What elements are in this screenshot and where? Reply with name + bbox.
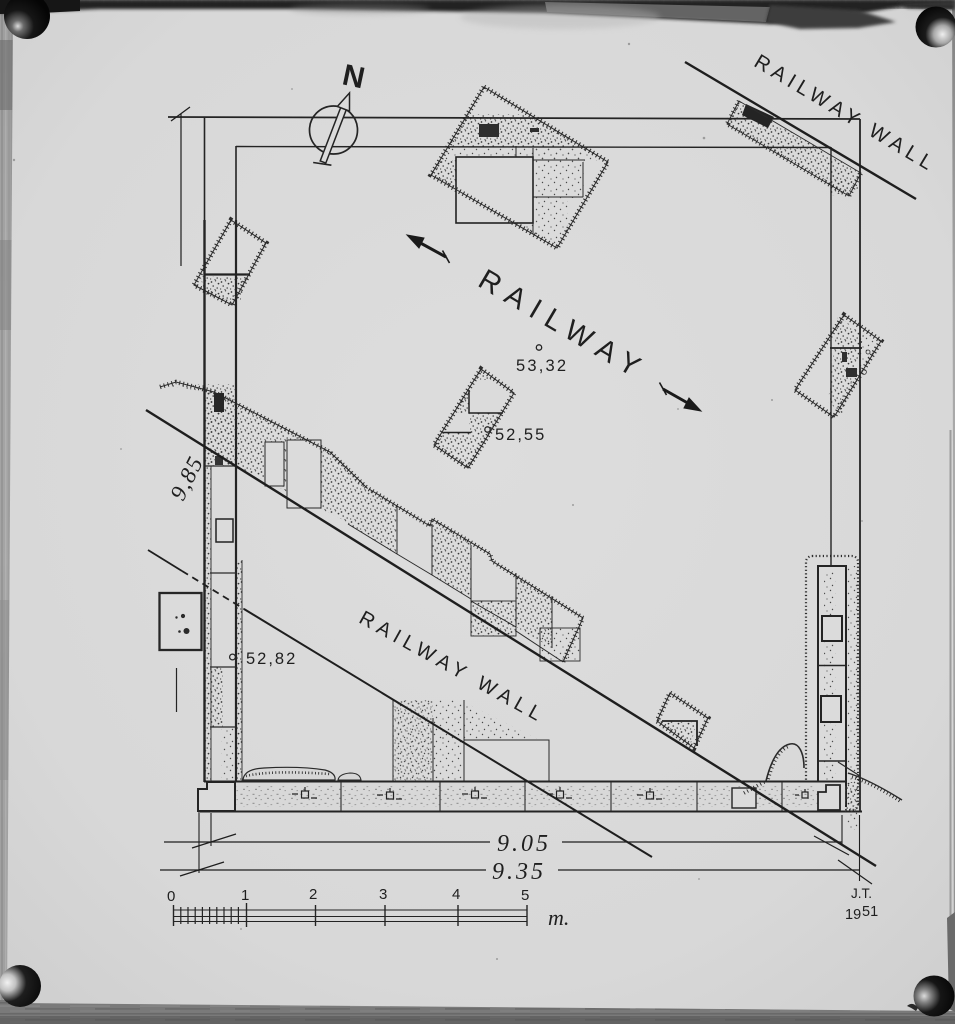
svg-text:19: 19 [845,907,861,923]
svg-text:9.35: 9.35 [492,859,546,885]
svg-text:0: 0 [167,888,175,905]
svg-text:53,32: 53,32 [516,357,568,375]
svg-text:52,55: 52,55 [495,426,546,444]
svg-text:51: 51 [862,904,878,920]
svg-text:52,82: 52,82 [246,650,297,668]
svg-text:5: 5 [521,887,529,904]
svg-text:J.T.: J.T. [851,886,872,901]
svg-text:9.05: 9.05 [497,831,551,857]
svg-text:1: 1 [241,887,249,904]
svg-text:4: 4 [452,886,460,903]
svg-text:2: 2 [309,886,317,903]
svg-text:m.: m. [548,905,569,930]
svg-text:3: 3 [379,886,387,903]
